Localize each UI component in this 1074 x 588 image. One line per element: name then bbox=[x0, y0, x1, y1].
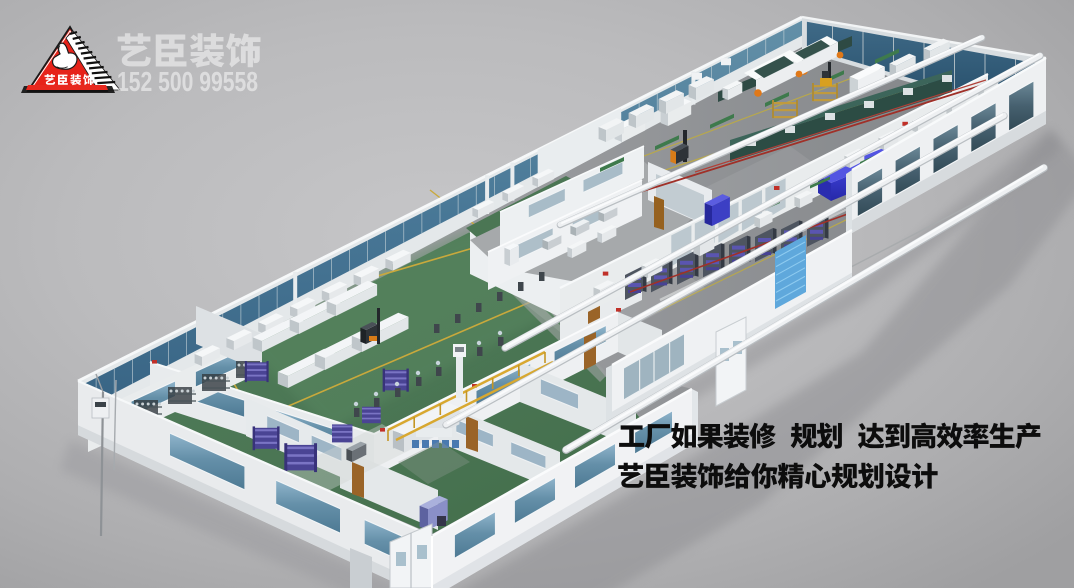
svg-text:152 500 99558: 152 500 99558 bbox=[117, 66, 258, 97]
